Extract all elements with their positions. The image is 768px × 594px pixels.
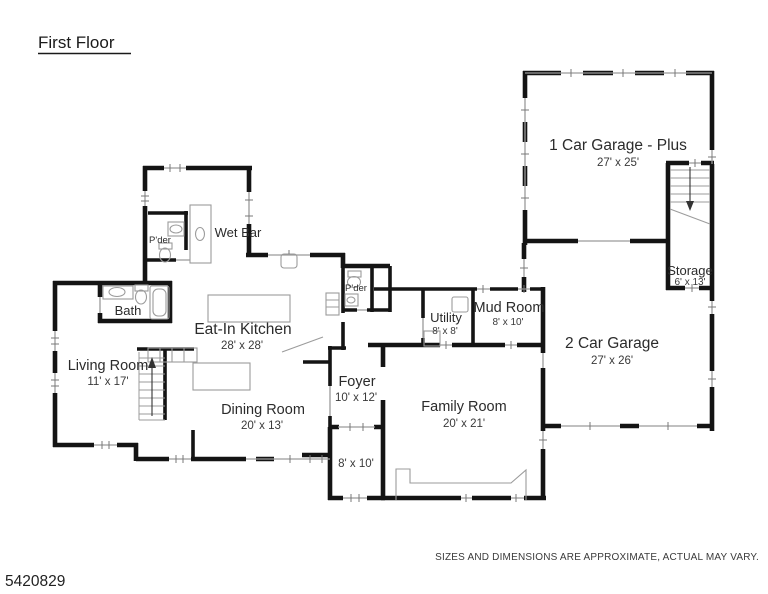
- listing-id: 5420829: [5, 573, 65, 590]
- room-dims-family: 20' x 21': [443, 418, 485, 430]
- wetbar-counter: [190, 205, 211, 263]
- room-dims-utility: 8' x 8': [432, 326, 458, 337]
- room-dims-dining: 20' x 13': [241, 420, 283, 432]
- room-dims-living: 11' x 17': [87, 376, 128, 388]
- room-label-kitchen: Eat-In Kitchen: [194, 321, 291, 338]
- room-dims-garage1: 27' x 25': [597, 157, 639, 169]
- room-label-utility: Utility: [430, 310, 462, 325]
- floor-plan-page: First Floor 1 Car Garage - Plus 27' x 25…: [0, 0, 768, 594]
- room-label-living: Living Room: [68, 358, 149, 374]
- room-label-powder2: P'der: [345, 283, 367, 294]
- room-label-powder1: P'der: [149, 235, 171, 246]
- stairs-down-arrow: [686, 201, 694, 211]
- room-label-dining: Dining Room: [221, 402, 305, 418]
- room-label-storage: Storage: [667, 263, 713, 278]
- room-label-bath: Bath: [115, 303, 142, 318]
- room-label-garage2: 2 Car Garage: [565, 335, 659, 352]
- stairs-garage: [670, 167, 710, 224]
- room-dims-porch: 8' x 10': [338, 458, 374, 470]
- room-dims-foyer: 10' x 12': [335, 392, 377, 404]
- floor-plan-drawing: First Floor 1 Car Garage - Plus 27' x 25…: [0, 0, 768, 594]
- room-label-foyer: Foyer: [338, 374, 375, 390]
- room-dims-garage2: 27' x 26': [591, 355, 633, 367]
- room-dims-mudroom: 8' x 10': [492, 317, 523, 328]
- room-label-family: Family Room: [421, 399, 506, 415]
- page-title: First Floor: [38, 33, 115, 52]
- room-label-mudroom: Mud Room: [474, 300, 545, 316]
- room-dims-storage: 6' x 13': [674, 277, 705, 288]
- kitchen-fixtures: [148, 250, 339, 390]
- room-label-wetbar: Wet Bar: [215, 225, 262, 240]
- fireplace-hearth: [396, 469, 526, 500]
- disclaimer-text: SIZES AND DIMENSIONS ARE APPROXIMATE, AC…: [435, 552, 759, 563]
- room-dims-kitchen: 28' x 28': [221, 340, 263, 352]
- room-label-garage1: 1 Car Garage - Plus: [549, 137, 687, 154]
